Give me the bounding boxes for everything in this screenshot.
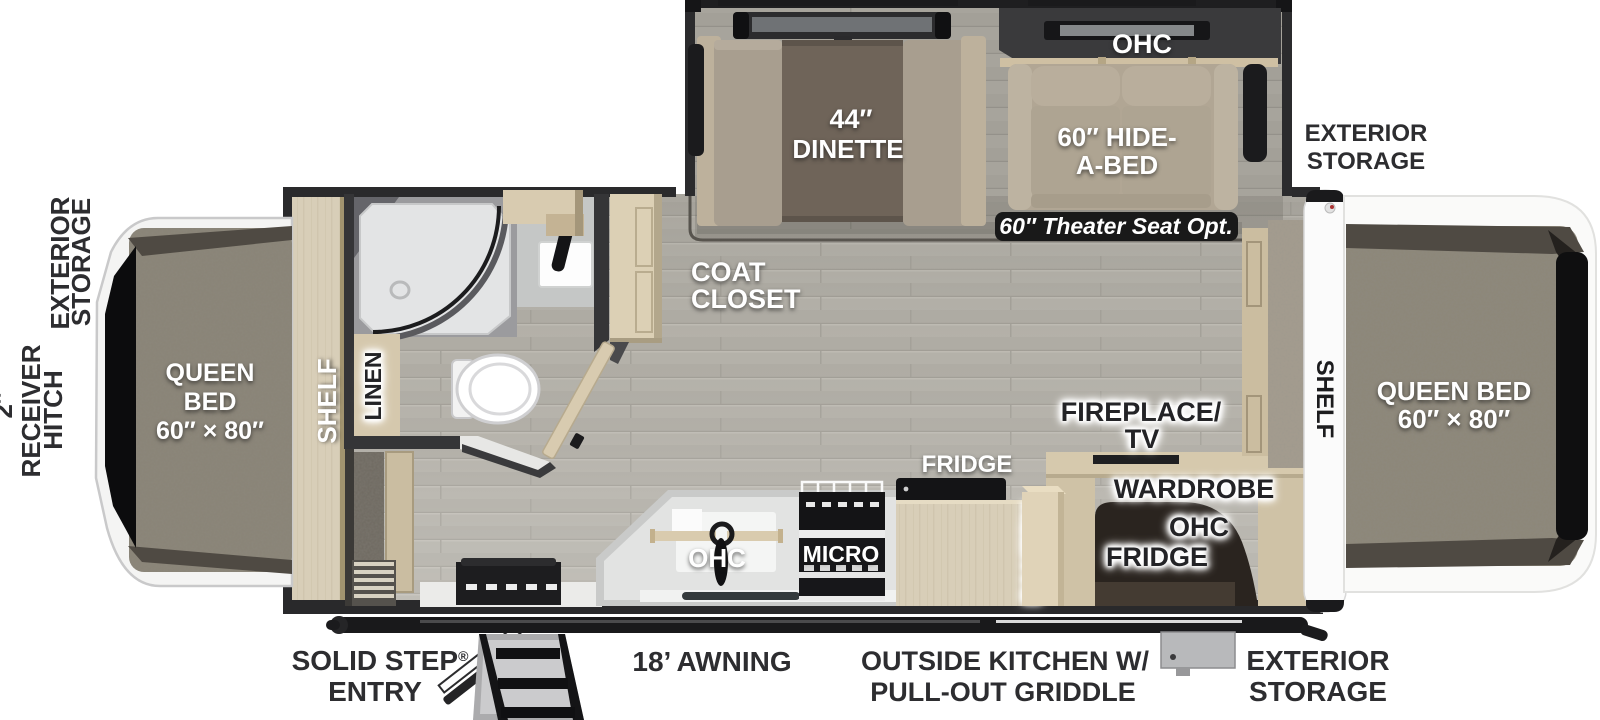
- svg-text:60″ HIDE-: 60″ HIDE-: [1057, 122, 1176, 152]
- svg-text:OHC: OHC: [1112, 29, 1172, 59]
- svg-text:FRIDGE: FRIDGE: [1106, 542, 1208, 572]
- svg-text:60″ Theater Seat Opt.: 60″ Theater Seat Opt.: [999, 213, 1232, 239]
- svg-text:STORAGE: STORAGE: [1249, 676, 1387, 707]
- svg-text:44″: 44″: [830, 104, 873, 134]
- svg-text:18’ AWNING: 18’ AWNING: [632, 646, 791, 677]
- svg-text:STORAGE: STORAGE: [66, 198, 96, 326]
- svg-text:SOLID STEP®: SOLID STEP®: [292, 645, 469, 676]
- svg-text:QUEEN BED: QUEEN BED: [1377, 376, 1532, 406]
- svg-text:PULL-OUT GRIDDLE: PULL-OUT GRIDDLE: [870, 677, 1135, 707]
- svg-text:DINETTE: DINETTE: [792, 134, 903, 164]
- svg-text:MICRO: MICRO: [803, 541, 880, 567]
- svg-text:TV: TV: [1125, 424, 1160, 454]
- svg-text:SHELF: SHELF: [1311, 360, 1338, 439]
- svg-text:OHC: OHC: [688, 543, 746, 573]
- svg-text:QUEEN: QUEEN: [166, 359, 255, 387]
- svg-text:60″ × 80″: 60″ × 80″: [156, 417, 264, 445]
- svg-text:FRIDGE: FRIDGE: [922, 451, 1013, 478]
- svg-text:EXTERIOR: EXTERIOR: [1246, 645, 1389, 676]
- svg-text:SHELF: SHELF: [312, 358, 342, 443]
- svg-text:ENTRY: ENTRY: [328, 676, 422, 707]
- svg-text:OUTSIDE KITCHEN W/: OUTSIDE KITCHEN W/: [861, 646, 1149, 676]
- svg-text:STORAGE: STORAGE: [1307, 148, 1425, 175]
- svg-text:FIREPLACE/: FIREPLACE/: [1061, 397, 1222, 427]
- svg-text:COAT: COAT: [691, 257, 766, 287]
- svg-text:60″ × 80″: 60″ × 80″: [1398, 404, 1510, 434]
- svg-text:A-BED: A-BED: [1076, 150, 1158, 180]
- svg-text:HITCH: HITCH: [38, 370, 68, 449]
- svg-text:LINEN: LINEN: [360, 352, 386, 421]
- svg-text:CLOSET: CLOSET: [691, 284, 801, 314]
- svg-text:BED: BED: [184, 388, 237, 416]
- svg-text:OHC: OHC: [1169, 512, 1229, 542]
- svg-text:EXTERIOR: EXTERIOR: [1305, 120, 1428, 147]
- svg-text:WARDROBE: WARDROBE: [1114, 474, 1275, 504]
